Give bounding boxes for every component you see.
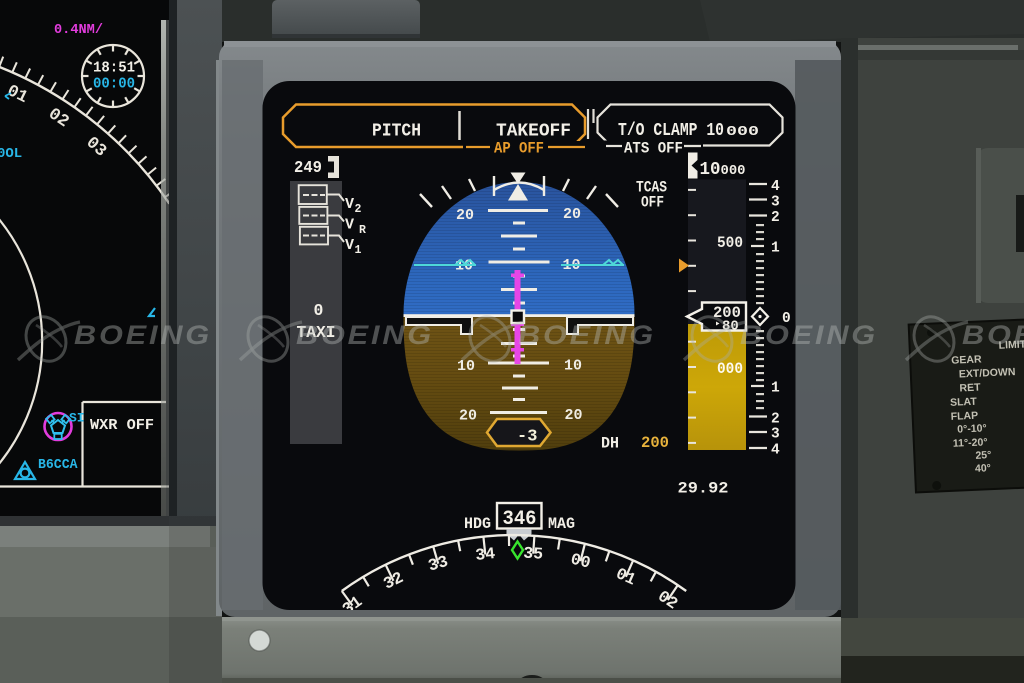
svg-text:10: 10 [700,160,721,180]
svg-text:25°: 25° [975,449,991,462]
svg-text:BOEING: BOEING [740,320,878,350]
svg-text:20: 20 [565,407,583,424]
svg-text:4: 4 [771,179,780,195]
svg-text:BOEING: BOEING [518,320,656,350]
svg-text:10: 10 [564,358,582,375]
svg-text:1: 1 [771,241,780,257]
svg-text:20: 20 [459,408,477,425]
svg-text:R: R [359,224,366,237]
svg-text:BOEING: BOEING [296,320,434,350]
svg-text:2: 2 [355,203,362,216]
svg-text:WXR OFF: WXR OFF [90,418,154,434]
svg-text:-3: -3 [517,428,537,447]
svg-text:00:00: 00:00 [93,77,135,93]
svg-text:SI: SI [69,411,85,426]
svg-text:346: 346 [503,508,537,531]
svg-text:DH: DH [601,435,619,453]
svg-text:0OL: 0OL [0,146,22,162]
svg-text:V: V [345,237,354,254]
svg-text:1: 1 [771,381,780,397]
svg-text:HDG: HDG [464,515,491,533]
svg-text:40°: 40° [975,462,991,475]
svg-text:B6CCA: B6CCA [38,458,78,473]
svg-text:2: 2 [771,210,780,226]
svg-text:GEAR: GEAR [951,353,982,366]
svg-text:0°-10°: 0°-10° [957,422,987,435]
svg-text:0.4NM/: 0.4NM/ [54,22,103,38]
svg-text:PITCH: PITCH [372,122,421,142]
svg-text:EXT/DOWN: EXT/DOWN [959,366,1016,380]
svg-text:34: 34 [474,544,496,565]
svg-text:3: 3 [771,427,780,443]
svg-text:1: 1 [355,244,362,257]
svg-text:200: 200 [641,434,669,452]
svg-text:20: 20 [456,207,474,224]
svg-text:29.92: 29.92 [678,480,729,498]
svg-text:0: 0 [314,301,324,320]
svg-text:RET: RET [959,382,981,395]
svg-text:V: V [345,217,354,234]
svg-text:MAG: MAG [548,515,575,533]
svg-text:BOEING: BOEING [74,320,212,350]
svg-text:11°-20°: 11°-20° [953,436,988,450]
svg-text:AP OFF: AP OFF [494,140,544,158]
svg-text:4: 4 [771,443,780,459]
svg-text:18:51: 18:51 [93,61,135,77]
svg-text:V: V [345,196,354,213]
svg-text:FLAP: FLAP [950,410,978,423]
svg-text:000: 000 [721,164,746,179]
svg-text:10: 10 [457,358,475,375]
svg-text:T/O CLAMP 10: T/O CLAMP 10 [618,121,724,141]
svg-text:SLAT: SLAT [950,396,978,409]
svg-text:249: 249 [294,158,322,177]
svg-text:35: 35 [523,544,544,564]
svg-text:ATS OFF: ATS OFF [624,140,683,158]
svg-text:BOEING: BOEING [962,320,1024,350]
svg-text:000: 000 [726,125,759,140]
svg-text:000: 000 [717,360,743,378]
svg-text:20: 20 [563,206,581,223]
svg-text:TAKEOFF: TAKEOFF [496,122,571,142]
svg-text:OFF: OFF [641,194,664,212]
svg-text:3: 3 [771,195,780,211]
svg-text:500: 500 [717,234,743,252]
svg-text:2: 2 [771,412,780,428]
